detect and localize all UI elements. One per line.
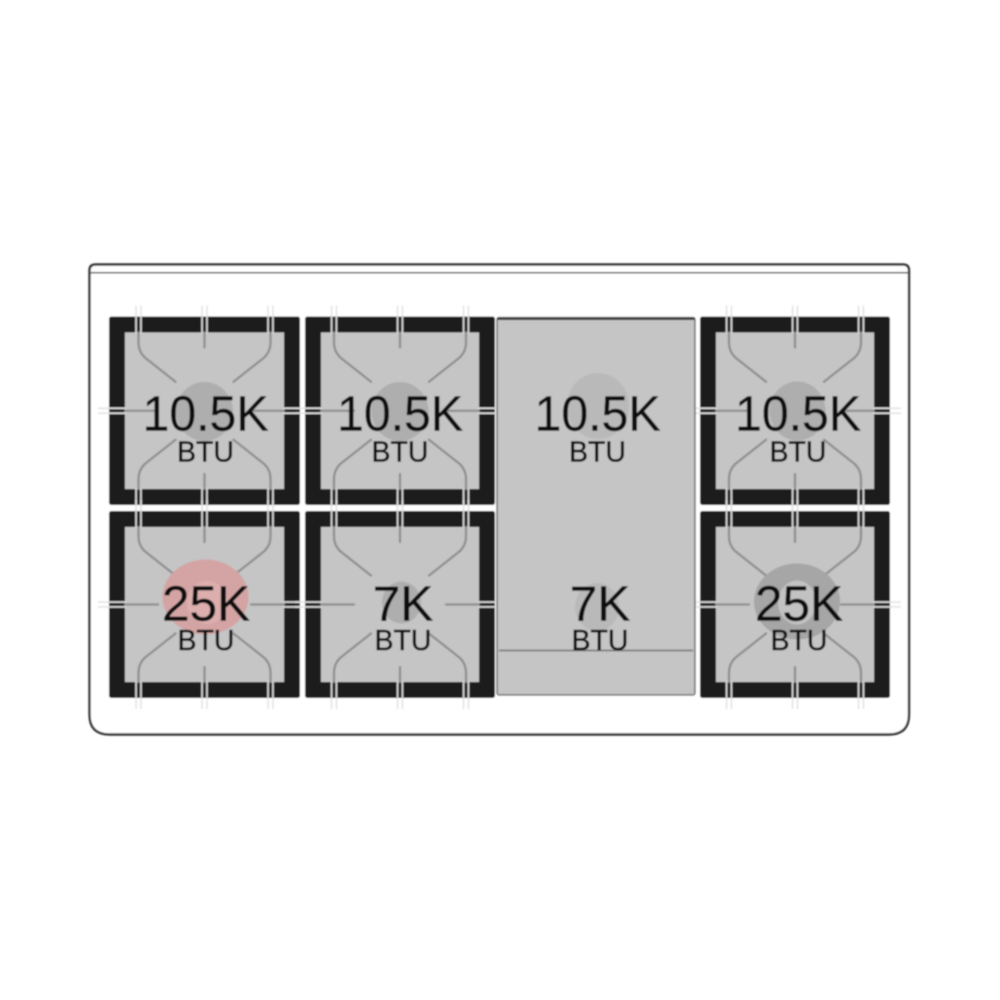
svg-text:BTU: BTU (375, 625, 432, 657)
svg-text:25K: 25K (162, 577, 250, 632)
svg-text:7K: 7K (373, 577, 434, 632)
svg-text:25K: 25K (755, 577, 843, 632)
svg-text:10.5K: 10.5K (535, 387, 661, 442)
svg-text:BTU: BTU (178, 625, 235, 657)
svg-text:BTU: BTU (569, 437, 626, 469)
svg-text:10.5K: 10.5K (735, 387, 861, 442)
svg-text:7K: 7K (570, 577, 631, 632)
svg-text:BTU: BTU (177, 437, 234, 469)
svg-text:BTU: BTU (372, 437, 429, 469)
svg-text:10.5K: 10.5K (143, 387, 269, 442)
svg-text:BTU: BTU (572, 625, 629, 657)
svg-text:BTU: BTU (770, 437, 827, 469)
svg-text:10.5K: 10.5K (337, 387, 463, 442)
svg-text:BTU: BTU (771, 625, 828, 657)
